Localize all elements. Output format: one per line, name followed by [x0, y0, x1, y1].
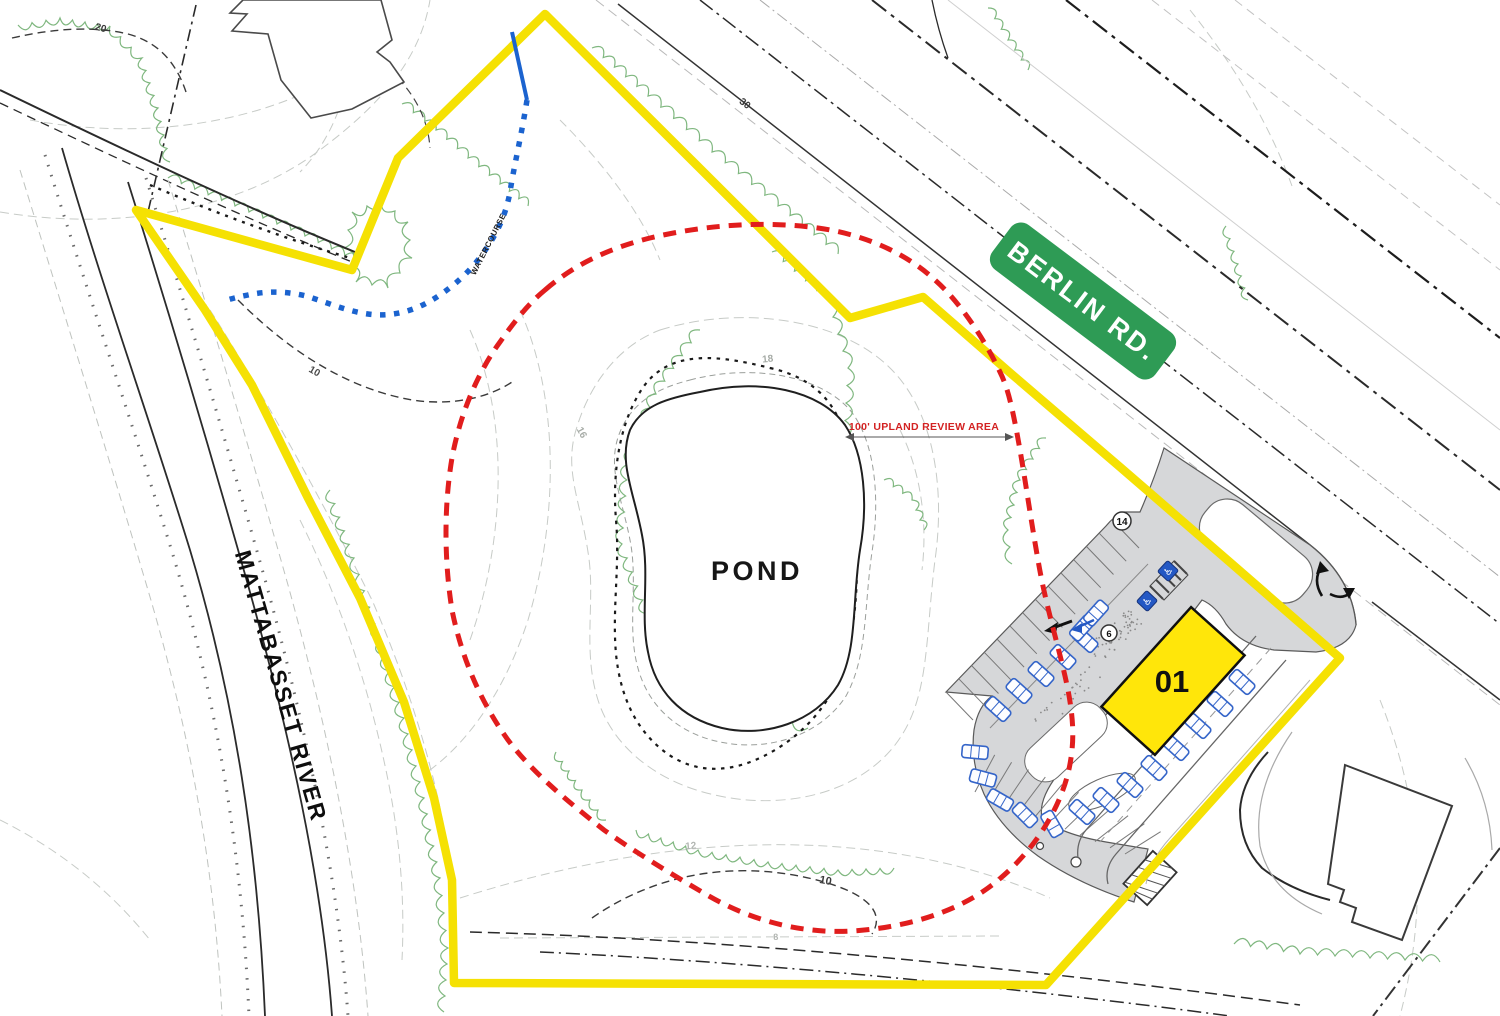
- stipple-dot: [1095, 655, 1097, 657]
- stipple-dot: [1123, 612, 1125, 614]
- stipple-dot: [1046, 709, 1048, 711]
- stipple-dot: [1125, 616, 1127, 618]
- stipple-dot: [1064, 694, 1066, 696]
- stipple-dot: [1114, 649, 1116, 651]
- stipple-dot: [1035, 720, 1037, 722]
- stipple-dot: [1094, 653, 1096, 655]
- stipple-dot: [1105, 643, 1107, 645]
- river-label-group: MATTABASSET RIVER: [230, 547, 332, 824]
- tree-line: [18, 18, 170, 162]
- contour-label: 10: [307, 364, 323, 379]
- stipple-dot: [1080, 679, 1082, 681]
- stipple-dot: [1114, 622, 1116, 624]
- stipple-dot: [1136, 623, 1138, 625]
- stipple-dot: [1096, 637, 1098, 639]
- stipple-dot: [1072, 698, 1074, 700]
- tree-line: [1234, 938, 1440, 962]
- tree-line: [554, 752, 606, 820]
- stipple-dot: [1062, 713, 1064, 715]
- stipple-dot: [1127, 625, 1129, 627]
- utility-circle: [1037, 843, 1044, 850]
- watercourse-label-group: WATERCOURSE: [469, 212, 508, 277]
- stipple-dot: [1120, 633, 1122, 635]
- road-badge-label: BERLIN RD.: [1002, 235, 1163, 367]
- stipple-dot: [1046, 707, 1048, 709]
- tree-line: [1223, 226, 1248, 300]
- stipple-dot: [1134, 628, 1136, 630]
- stipple-dot: [1129, 618, 1131, 620]
- parking-stripe: [946, 692, 973, 720]
- stipple-dot: [1125, 638, 1127, 640]
- contour-label: 16: [574, 425, 589, 440]
- contour-label: 12: [685, 841, 697, 853]
- car-icon: [1140, 754, 1168, 781]
- stipple-dot: [1102, 644, 1104, 646]
- stipple-dot: [1084, 671, 1086, 673]
- stipple-dot: [1079, 686, 1081, 688]
- stipple-dot: [1051, 702, 1053, 704]
- contour-label: 20: [94, 22, 108, 36]
- tree-line: [592, 47, 838, 254]
- stipple-dot: [1140, 623, 1142, 625]
- tree-line: [636, 830, 894, 876]
- stipple-dot: [1118, 639, 1120, 641]
- stipple-dot: [1084, 690, 1086, 692]
- stipple-dot: [1098, 637, 1100, 639]
- stipple-dot: [1127, 632, 1129, 634]
- stipple-dot: [1034, 718, 1036, 720]
- stipple-dot: [1120, 631, 1122, 633]
- stipple-dot: [1075, 683, 1077, 685]
- contour-label: 18: [762, 353, 775, 365]
- road-badge: BERLIN RD.: [985, 217, 1182, 384]
- pond-label: POND: [711, 556, 803, 586]
- stipple-dot: [1109, 649, 1111, 651]
- stipple-dot: [1088, 666, 1090, 668]
- stipple-dot: [1128, 611, 1130, 613]
- stipple-dot: [1072, 687, 1074, 689]
- stipple-dot: [1040, 712, 1042, 714]
- stipple-dot: [1127, 616, 1129, 618]
- parking-count-upper: 14: [1116, 517, 1128, 528]
- stipple-dot: [1105, 656, 1107, 658]
- tree-line: [1003, 438, 1046, 564]
- stipple-dot: [1088, 687, 1090, 689]
- stipple-dot: [1074, 693, 1076, 695]
- contour-label: 10: [818, 874, 832, 888]
- parking-count-island: 6: [1106, 629, 1111, 640]
- stipple-dot: [1130, 614, 1132, 616]
- stipple-dot: [1129, 624, 1131, 626]
- stipple-dot: [1099, 676, 1101, 678]
- tree-line: [988, 8, 1030, 70]
- site-plan-canvas: 01 ♿ ♿: [0, 0, 1500, 1016]
- stipple-dot: [1125, 621, 1127, 623]
- building-number-label: 01: [1155, 664, 1189, 699]
- stipple-dot: [1060, 698, 1062, 700]
- stipple-dot: [1130, 611, 1132, 613]
- stipple-dot: [1124, 626, 1126, 628]
- existing-building-northwest: [230, 0, 404, 118]
- river-label: MATTABASSET RIVER: [230, 547, 332, 824]
- tree-line: [884, 479, 927, 530]
- upland-note-label: 100' UPLAND REVIEW AREA: [849, 421, 999, 433]
- stipple-dot: [1044, 709, 1046, 711]
- stipple-dot: [1080, 674, 1082, 676]
- site-plan: 01 ♿ ♿: [0, 0, 1500, 1016]
- stipple-dot: [1137, 619, 1139, 621]
- stipple-dot: [1132, 622, 1134, 624]
- existing-buildings-southeast: [1240, 732, 1492, 940]
- watercourse-label: WATERCOURSE: [469, 212, 508, 277]
- car-icon: [961, 744, 988, 759]
- utility-circle: [1071, 857, 1081, 867]
- river-lines: [20, 148, 368, 1016]
- contour-label: 8: [773, 932, 779, 942]
- stipple-dot: [1127, 627, 1129, 629]
- stipple-dot: [1122, 615, 1124, 617]
- stipple-dot: [1120, 637, 1122, 639]
- tree-line: [402, 103, 528, 206]
- stipple-dot: [1130, 630, 1132, 632]
- stipple-dot: [1124, 615, 1126, 617]
